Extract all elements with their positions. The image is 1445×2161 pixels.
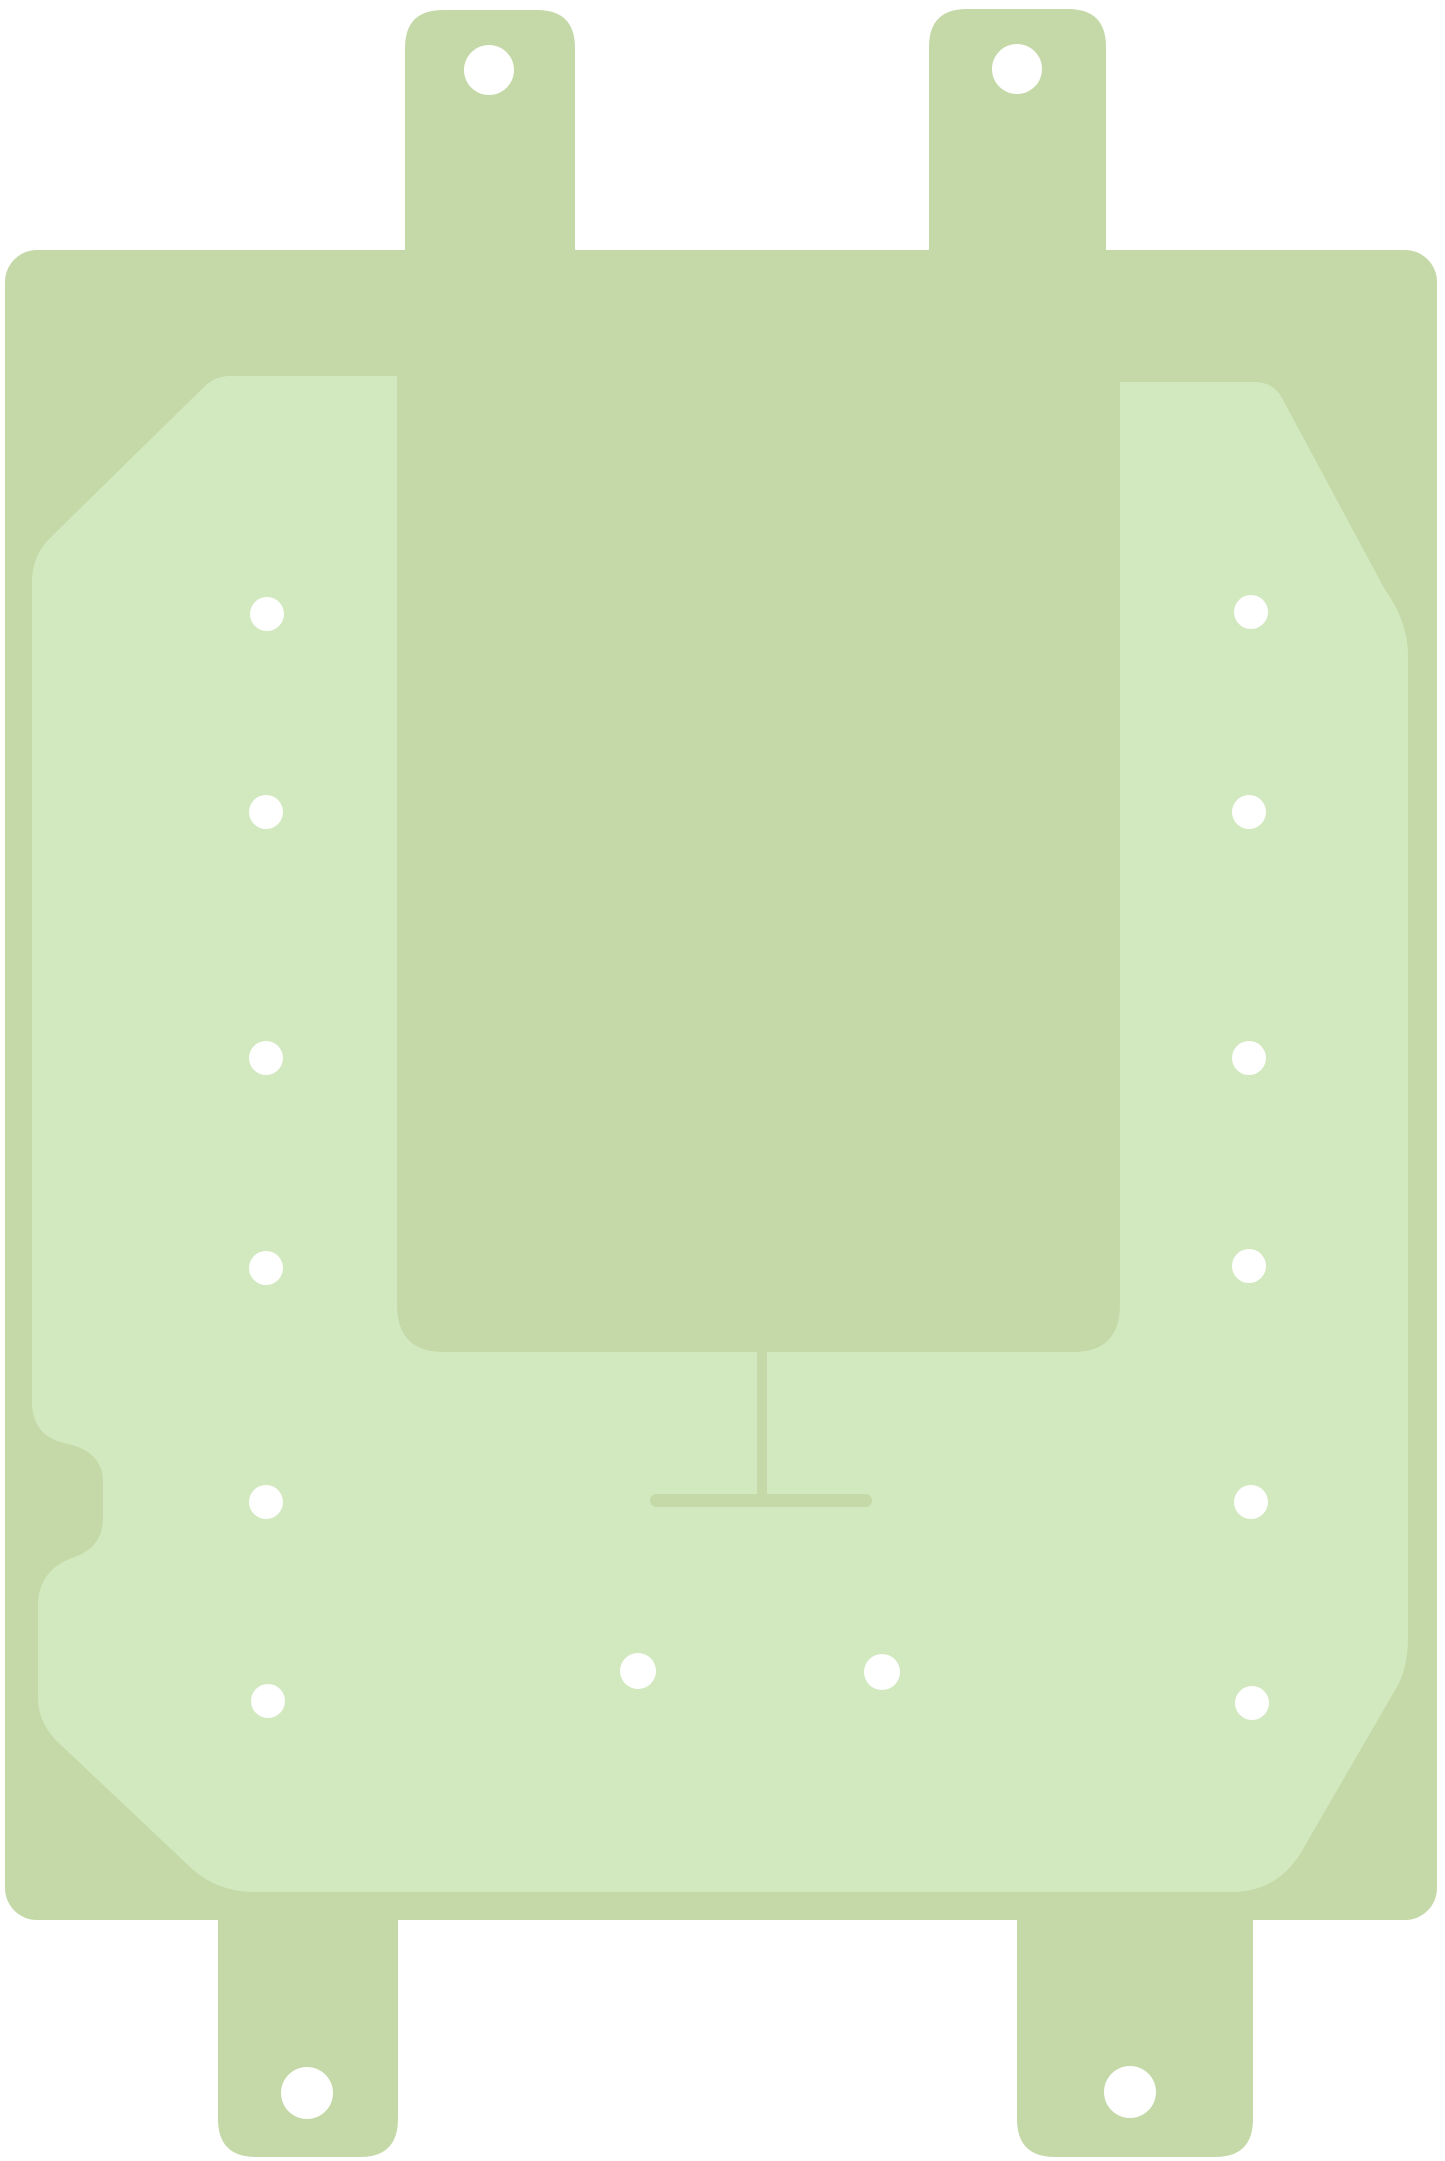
liner-hole-left [249, 1041, 283, 1075]
liner-hole-bottom [620, 1653, 656, 1689]
tab-alignment-hole [281, 2067, 333, 2119]
tab-alignment-hole [1104, 2066, 1156, 2118]
liner-hole-bottom [864, 1654, 900, 1690]
t-mark-vertical-cut [757, 1350, 767, 1502]
liner-hole-left [249, 795, 283, 829]
t-mark-horizontal-cut [650, 1494, 872, 1507]
liner-hole-right [1232, 1041, 1266, 1075]
liner-hole-right [1235, 1686, 1269, 1720]
tab-alignment-hole [992, 44, 1042, 94]
liner-hole-left [249, 1485, 283, 1519]
liner-hole-right [1234, 1485, 1268, 1519]
liner-hole-right [1234, 595, 1268, 629]
adhesive-gasket-image [0, 0, 1445, 2161]
liner-hole-left [249, 1251, 283, 1285]
liner-hole-right [1232, 795, 1266, 829]
liner-hole-left [251, 1684, 285, 1718]
liner-hole-right [1232, 1249, 1266, 1283]
tab-alignment-hole [464, 45, 514, 95]
liner-hole-left [250, 597, 284, 631]
product-image-stage [0, 0, 1445, 2161]
